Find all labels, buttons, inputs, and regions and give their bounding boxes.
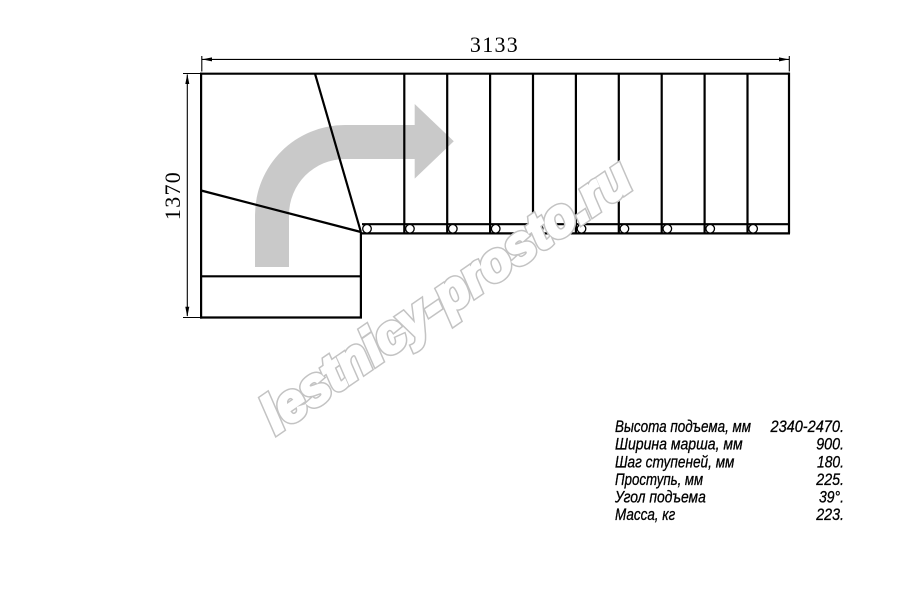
svg-text:Проступь, мм: Проступь, мм xyxy=(615,470,704,489)
svg-text:Высота подъема, мм: Высота подъема, мм xyxy=(615,417,751,436)
svg-text:3133: 3133 xyxy=(470,32,519,57)
svg-text:225.: 225. xyxy=(815,470,844,489)
svg-text:2340-2470.: 2340-2470. xyxy=(770,417,844,436)
svg-text:900.: 900. xyxy=(816,435,844,454)
svg-text:1370: 1370 xyxy=(160,171,185,220)
svg-text:Угол подъема: Угол подъема xyxy=(614,488,706,507)
svg-text:180.: 180. xyxy=(817,452,844,471)
svg-text:39°.: 39°. xyxy=(819,488,844,507)
svg-text:Масса, кг: Масса, кг xyxy=(615,505,675,524)
svg-text:Ширина марша, мм: Ширина марша, мм xyxy=(615,435,743,454)
svg-text:Шаг ступеней, мм: Шаг ступеней, мм xyxy=(615,452,735,471)
svg-text:223.: 223. xyxy=(815,505,844,524)
